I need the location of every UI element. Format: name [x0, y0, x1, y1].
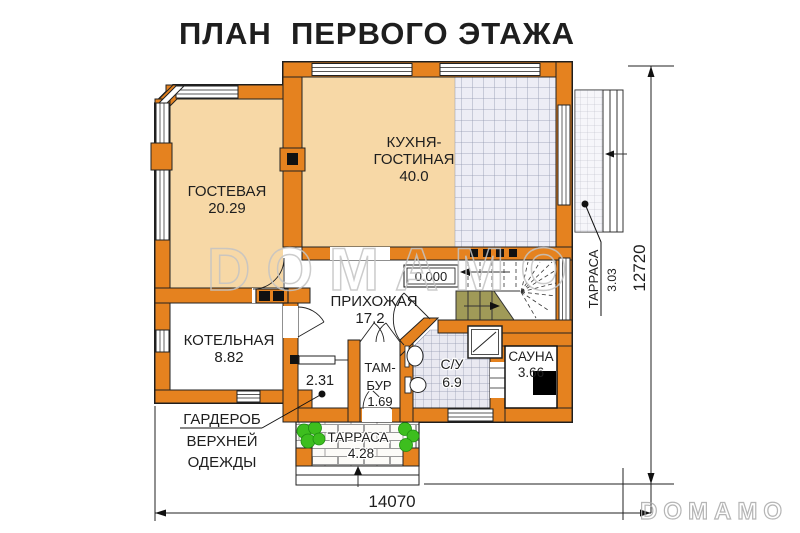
wardrobe-note-3: ОДЕЖДЫ [188, 454, 257, 471]
watermark-corner: DOMAMO [640, 498, 788, 525]
terrace-right-label: ТАРРАСА [586, 249, 601, 308]
guest-room-area: 20.29 [208, 200, 246, 217]
dim-arrow [648, 473, 655, 484]
tambour-label-1: ТАМ- [364, 360, 395, 375]
sink-icon [405, 346, 423, 367]
wardrobe-note-1: ГАРДЕРОБ [183, 411, 261, 428]
kitchen-area: 40.0 [399, 168, 428, 185]
kitchen-tiled-floor [455, 77, 556, 247]
dim-vertical: 12720 [630, 244, 649, 291]
bay-pier [151, 143, 172, 170]
tambour-area: 1.69 [367, 394, 392, 409]
terrace-bottom-label: ТАРРАСА [327, 430, 388, 445]
kitchen-label-2: ГОСТИНАЯ [374, 151, 455, 168]
bathroom-label: С/У [441, 356, 464, 372]
dim-horizontal: 14070 [368, 492, 415, 511]
column-icon [280, 148, 305, 171]
boiler-label: КОТЕЛЬНАЯ [184, 332, 275, 349]
shower-icon [468, 326, 502, 358]
sauna-label: САУНА [508, 349, 553, 364]
page-title: ПЛАН ПЕРВОГО ЭТАЖА [179, 16, 575, 51]
boiler-area: 8.82 [214, 349, 243, 366]
dim-arrow [648, 66, 655, 77]
toilet-icon [405, 377, 426, 393]
terrace-right-deck [575, 90, 603, 232]
bathroom-area: 6.9 [442, 374, 462, 390]
terrace-pier [296, 448, 312, 466]
floor-plan-canvas: ПЛАН ПЕРВОГО ЭТАЖА [0, 0, 800, 533]
tambour-label-2: БУР [366, 378, 391, 393]
watermark-center: DOMAMO [207, 236, 583, 303]
guest-room-label: ГОСТЕВАЯ [188, 183, 267, 200]
wardrobe-note-2: ВЕРХНЕЙ [187, 432, 258, 450]
hallway-area: 17.2 [355, 310, 384, 327]
terrace-right-area: 3.03 [605, 268, 619, 292]
terrace-right [575, 90, 627, 232]
terrace-bottom-area: 4.28 [348, 446, 374, 461]
kitchen-label-1: КУХНЯ- [386, 134, 441, 151]
sauna-area: 3.66 [518, 365, 544, 380]
dim-arrow [155, 510, 166, 517]
wardrobe-area: 2.31 [306, 373, 334, 389]
